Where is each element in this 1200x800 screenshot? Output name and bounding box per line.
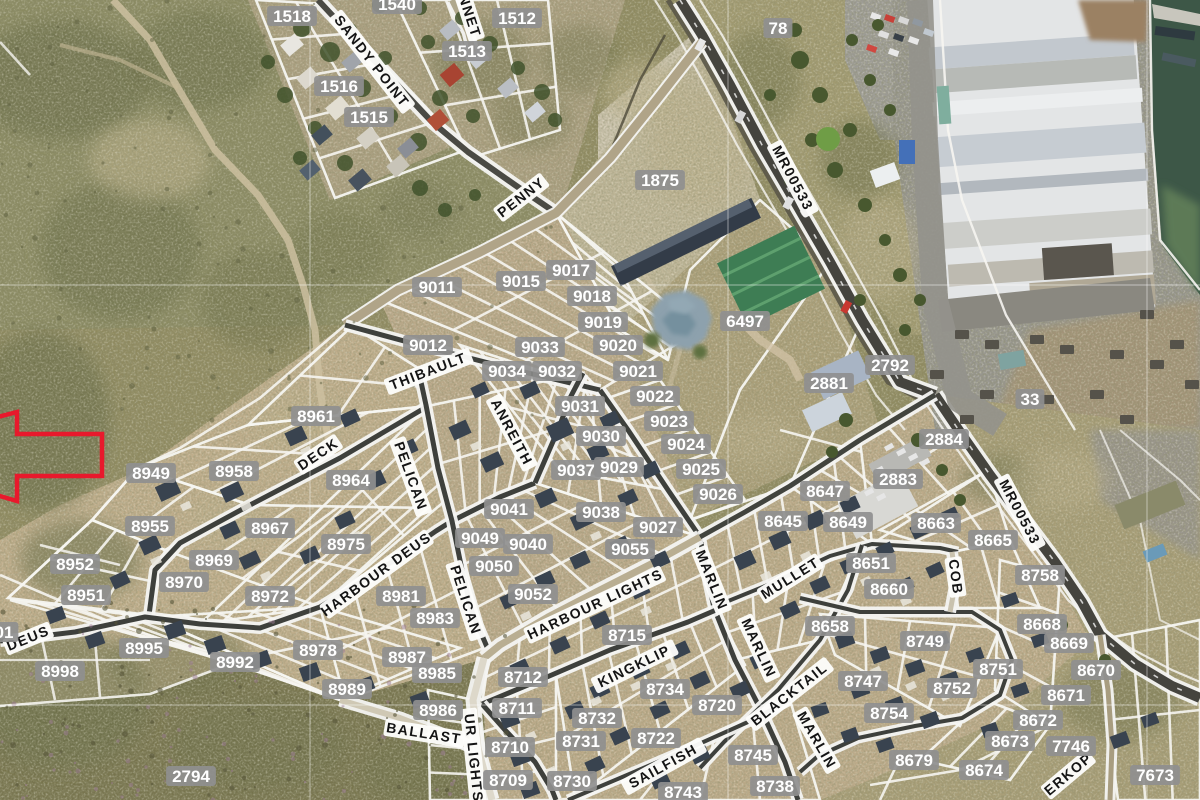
svg-text:9029: 9029 [600,458,638,477]
svg-text:1513: 1513 [448,42,486,61]
svg-text:8658: 8658 [811,617,849,636]
svg-text:9034: 9034 [488,362,526,381]
svg-text:1540: 1540 [378,0,416,14]
svg-text:8668: 8668 [1023,615,1061,634]
svg-text:8720: 8720 [698,696,736,715]
svg-text:8673: 8673 [991,732,1029,751]
svg-text:8758: 8758 [1021,566,1059,585]
svg-text:8958: 8958 [215,462,253,481]
svg-text:9023: 9023 [650,412,688,431]
svg-text:9026: 9026 [699,485,737,504]
svg-text:8975: 8975 [327,535,365,554]
svg-text:8970: 8970 [165,573,203,592]
svg-text:8660: 8660 [870,580,908,599]
svg-text:8989: 8989 [328,680,366,699]
svg-text:8745: 8745 [734,746,772,765]
svg-text:8995: 8995 [125,639,163,658]
svg-text:1518: 1518 [273,7,311,26]
svg-text:8730: 8730 [553,772,591,791]
svg-text:9037: 9037 [557,461,595,480]
svg-text:8663: 8663 [917,514,955,533]
svg-text:9019: 9019 [584,313,622,332]
svg-text:8734: 8734 [646,680,684,699]
svg-text:1516: 1516 [320,77,358,96]
svg-text:8749: 8749 [906,632,944,651]
svg-text:9024: 9024 [667,435,705,454]
svg-text:8747: 8747 [844,672,882,691]
svg-text:01: 01 [0,623,13,642]
svg-text:9017: 9017 [552,261,590,280]
svg-text:8992: 8992 [216,653,254,672]
svg-text:1515: 1515 [350,108,388,127]
svg-text:8671: 8671 [1047,686,1085,705]
svg-text:8743: 8743 [664,783,702,800]
svg-text:8712: 8712 [504,668,542,687]
svg-text:8665: 8665 [974,531,1012,550]
svg-text:78: 78 [769,19,788,38]
svg-text:8669: 8669 [1050,634,1088,653]
svg-text:2792: 2792 [871,356,909,375]
svg-text:8969: 8969 [195,551,233,570]
svg-text:8672: 8672 [1019,711,1057,730]
svg-text:9040: 9040 [509,535,547,554]
svg-text:8986: 8986 [419,701,457,720]
svg-text:8964: 8964 [332,471,370,490]
svg-text:8998: 8998 [41,662,79,681]
svg-text:8955: 8955 [131,517,169,536]
svg-text:8722: 8722 [637,729,675,748]
svg-text:9030: 9030 [582,427,620,446]
svg-text:9018: 9018 [573,287,611,306]
svg-text:2794: 2794 [172,767,210,786]
svg-text:2881: 2881 [810,374,848,393]
svg-text:7746: 7746 [1052,737,1090,756]
svg-text:8951: 8951 [67,586,105,605]
svg-text:8651: 8651 [852,554,890,573]
svg-text:8961: 8961 [297,407,335,426]
svg-text:9020: 9020 [599,336,637,355]
svg-text:9025: 9025 [682,460,720,479]
svg-text:8679: 8679 [895,751,933,770]
svg-text:9032: 9032 [538,362,576,381]
svg-text:8670: 8670 [1077,661,1115,680]
svg-text:6497: 6497 [726,312,764,331]
svg-text:8983: 8983 [416,609,454,628]
svg-text:8978: 8978 [299,641,337,660]
svg-text:8967: 8967 [251,519,289,538]
svg-text:8754: 8754 [870,704,908,723]
svg-text:9031: 9031 [561,397,599,416]
svg-text:8985: 8985 [418,664,456,683]
svg-text:8709: 8709 [489,771,527,790]
svg-text:9027: 9027 [639,518,677,537]
svg-text:8981: 8981 [382,587,420,606]
svg-text:7673: 7673 [1136,766,1174,785]
svg-text:9052: 9052 [514,585,552,604]
svg-text:33: 33 [1021,390,1040,409]
svg-text:9038: 9038 [582,503,620,522]
svg-text:9055: 9055 [611,540,649,559]
svg-text:8647: 8647 [806,482,844,501]
svg-text:8711: 8711 [499,699,536,718]
svg-text:2884: 2884 [925,430,963,449]
svg-text:8752: 8752 [933,679,971,698]
svg-text:9021: 9021 [619,362,657,381]
svg-text:8949: 8949 [132,464,170,483]
svg-text:1875: 1875 [641,171,679,190]
svg-text:9015: 9015 [502,272,540,291]
svg-text:9041: 9041 [490,500,528,519]
svg-text:9012: 9012 [409,336,447,355]
svg-text:8952: 8952 [56,555,94,574]
svg-text:9022: 9022 [636,387,674,406]
svg-text:8645: 8645 [764,512,802,531]
svg-text:1512: 1512 [498,9,536,28]
svg-text:8738: 8738 [756,777,794,796]
svg-text:8732: 8732 [578,709,616,728]
svg-text:9049: 9049 [461,529,499,548]
svg-text:8731: 8731 [562,732,600,751]
svg-text:9033: 9033 [521,338,559,357]
svg-text:8674: 8674 [965,761,1003,780]
svg-text:8715: 8715 [608,626,646,645]
svg-text:9050: 9050 [475,557,513,576]
svg-text:8649: 8649 [829,513,867,532]
svg-text:8972: 8972 [251,587,289,606]
svg-text:9011: 9011 [419,278,456,297]
svg-text:2883: 2883 [879,470,917,489]
svg-text:8751: 8751 [979,660,1017,679]
svg-text:8710: 8710 [491,738,529,757]
